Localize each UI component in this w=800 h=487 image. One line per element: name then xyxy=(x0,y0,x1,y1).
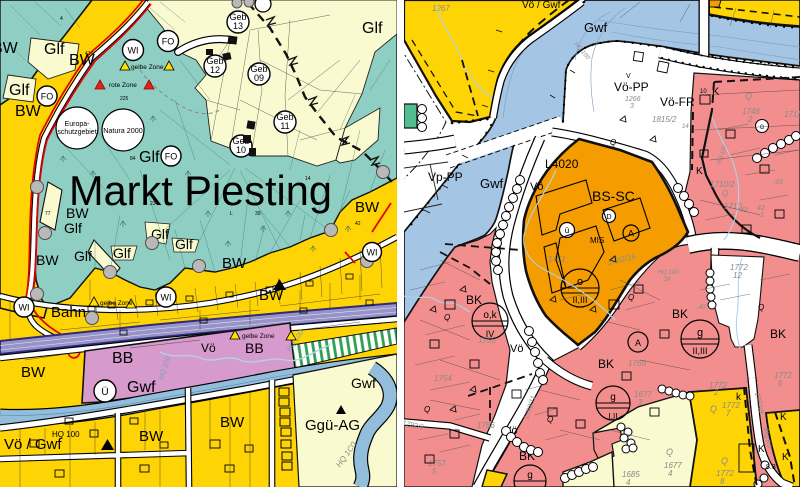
svg-text:1677: 1677 xyxy=(664,461,682,470)
svg-text:V: V xyxy=(626,73,631,80)
svg-text:K: K xyxy=(696,166,703,177)
svg-text:Europa-: Europa- xyxy=(65,121,91,128)
svg-text:Vö: Vö xyxy=(201,341,216,355)
svg-text:Glf: Glf xyxy=(44,41,65,58)
svg-text:o,k: o,k xyxy=(483,310,497,321)
svg-text:12: 12 xyxy=(210,65,220,75)
svg-text:42: 42 xyxy=(757,205,765,212)
svg-text:schutzgebiet: schutzgebiet xyxy=(57,129,96,136)
svg-text:09: 09 xyxy=(254,73,264,83)
svg-text:1772: 1772 xyxy=(716,469,734,478)
svg-text:ü: ü xyxy=(760,124,764,131)
svg-text:Glf: Glf xyxy=(9,82,30,99)
svg-text:12: 12 xyxy=(733,271,742,280)
svg-text:Glf: Glf xyxy=(64,220,82,236)
svg-text:Q: Q xyxy=(710,404,717,414)
svg-text:1: 1 xyxy=(760,212,764,219)
svg-text:D: D xyxy=(606,214,611,221)
svg-text:Vö: Vö xyxy=(510,343,523,355)
svg-text:8.3: 8.3 xyxy=(766,464,776,471)
svg-text:2: 2 xyxy=(747,115,753,124)
svg-text:Vö: Vö xyxy=(530,181,543,193)
svg-text:10: 10 xyxy=(700,89,707,95)
svg-text:g: g xyxy=(610,392,616,403)
svg-text:BW: BW xyxy=(355,199,380,216)
svg-text:L4020: L4020 xyxy=(545,157,579,171)
svg-text:1772: 1772 xyxy=(774,371,792,380)
svg-text:FO: FO xyxy=(162,37,175,47)
svg-text:Vö-PP: Vö-PP xyxy=(614,80,649,94)
svg-text:Q: Q xyxy=(424,405,430,414)
svg-text:1685: 1685 xyxy=(622,470,640,479)
svg-text:g: g xyxy=(697,327,703,339)
svg-text:rote Zone: rote Zone xyxy=(109,82,137,89)
svg-text:HQ 100: HQ 100 xyxy=(52,430,80,439)
svg-text:1754: 1754 xyxy=(434,374,452,383)
svg-text:Gwf: Gwf xyxy=(127,379,156,396)
svg-text:10: 10 xyxy=(236,145,246,155)
svg-text:Q: Q xyxy=(444,313,450,322)
svg-text:Natura 2000: Natura 2000 xyxy=(103,126,143,135)
svg-text:1266: 1266 xyxy=(625,96,641,103)
svg-text:42: 42 xyxy=(355,221,361,227)
svg-text:FO: FO xyxy=(165,152,178,162)
svg-text:Q: Q xyxy=(628,293,634,302)
svg-text:Glf: Glf xyxy=(74,248,92,264)
svg-text:BK: BK xyxy=(598,357,614,371)
svg-text:BW: BW xyxy=(220,414,245,431)
svg-text:WI: WI xyxy=(367,248,378,258)
svg-text:K: K xyxy=(780,412,787,423)
svg-text:BW: BW xyxy=(69,52,96,69)
svg-text:FO: FO xyxy=(41,92,54,102)
svg-text:BW: BW xyxy=(15,103,42,120)
svg-text:4: 4 xyxy=(626,478,631,487)
svg-text:WI: WI xyxy=(161,293,172,303)
svg-text:Gwf: Gwf xyxy=(351,375,376,391)
svg-text:gelbe Zone: gelbe Zone xyxy=(131,64,164,71)
svg-text:Ggü-AG: Ggü-AG xyxy=(305,417,360,434)
svg-text:g: g xyxy=(527,470,533,481)
svg-text:.40: .40 xyxy=(697,305,706,311)
svg-text:ü: ü xyxy=(565,226,569,235)
svg-text:7: 7 xyxy=(726,409,731,418)
svg-text:3: 3 xyxy=(630,103,634,110)
svg-text:.93: .93 xyxy=(773,179,783,186)
svg-text:HQ.100: HQ.100 xyxy=(658,270,679,276)
svg-text:13: 13 xyxy=(233,21,243,31)
svg-text:Glf: Glf xyxy=(362,20,383,37)
svg-text:II,III: II,III xyxy=(692,346,707,356)
svg-text:1757: 1757 xyxy=(428,459,446,468)
svg-text:77: 77 xyxy=(45,211,51,217)
svg-text:Ü: Ü xyxy=(101,386,108,398)
svg-text:Markt Piesting: Markt Piesting xyxy=(69,167,332,214)
svg-text:Q: Q xyxy=(666,447,673,457)
svg-text:Q: Q xyxy=(610,138,616,147)
svg-text:WI: WI xyxy=(19,303,30,313)
svg-text:K: K xyxy=(758,444,765,455)
svg-text:Vö-FR: Vö-FR xyxy=(660,95,695,109)
svg-text:8: 8 xyxy=(720,477,725,486)
svg-text:Q: Q xyxy=(758,303,764,312)
svg-text:.39: .39 xyxy=(662,277,671,283)
svg-text:BK: BK xyxy=(466,293,482,307)
svg-text:1755: 1755 xyxy=(478,336,496,345)
svg-text:225: 225 xyxy=(120,96,129,102)
svg-text:Glf: Glf xyxy=(139,149,160,166)
svg-text:1756: 1756 xyxy=(477,421,495,430)
svg-text:Vp-PP: Vp-PP xyxy=(428,170,463,184)
svg-text:3: 3 xyxy=(638,398,643,407)
svg-text:1710/2: 1710/2 xyxy=(710,180,735,189)
svg-text:BW: BW xyxy=(0,40,19,57)
svg-text:WI: WI xyxy=(128,46,139,56)
svg-text:Gwf: Gwf xyxy=(584,20,608,35)
svg-text:Q: Q xyxy=(721,456,728,466)
svg-text:BW: BW xyxy=(222,255,247,272)
svg-text:BK: BK xyxy=(770,327,786,341)
svg-text:K: K xyxy=(782,452,789,463)
svg-text:Glf: Glf xyxy=(113,245,131,261)
svg-text:gelbe Zone: gelbe Zone xyxy=(100,300,133,307)
svg-text:BK: BK xyxy=(672,307,688,321)
svg-text:14: 14 xyxy=(682,124,689,130)
svg-text:I,II: I,II xyxy=(609,412,618,421)
svg-text:A: A xyxy=(635,338,641,348)
svg-text:BB: BB xyxy=(245,340,264,356)
svg-text:1677: 1677 xyxy=(634,390,652,399)
svg-text:Vö / Gwf: Vö / Gwf xyxy=(522,0,561,11)
svg-text:4: 4 xyxy=(60,16,63,22)
svg-text:BW: BW xyxy=(139,428,164,445)
svg-text:gelbe Zone: gelbe Zone xyxy=(242,333,275,340)
svg-text:A: A xyxy=(628,229,634,239)
svg-text:BW: BW xyxy=(36,252,59,268)
svg-text:1711: 1711 xyxy=(784,110,800,119)
svg-text:1815/2: 1815/2 xyxy=(652,115,677,124)
svg-text:84: 84 xyxy=(130,156,136,162)
svg-text:MIS: MIS xyxy=(590,236,604,245)
svg-text:Glf: Glf xyxy=(175,236,193,252)
svg-text:Bahn: Bahn xyxy=(51,304,86,321)
svg-text:6: 6 xyxy=(778,379,783,388)
svg-text:K: K xyxy=(712,86,720,98)
svg-text:4: 4 xyxy=(668,469,673,478)
svg-text:1267: 1267 xyxy=(432,4,450,13)
svg-text:5: 5 xyxy=(432,467,437,476)
svg-text:2: 2 xyxy=(713,388,719,397)
svg-text:Q: Q xyxy=(547,415,553,424)
svg-text:1769: 1769 xyxy=(628,359,646,368)
svg-text:11: 11 xyxy=(280,121,289,131)
svg-text:BW: BW xyxy=(21,364,46,381)
svg-text:BB: BB xyxy=(112,350,133,367)
svg-text:Q: Q xyxy=(722,189,728,198)
svg-text:Gwf: Gwf xyxy=(480,176,504,191)
